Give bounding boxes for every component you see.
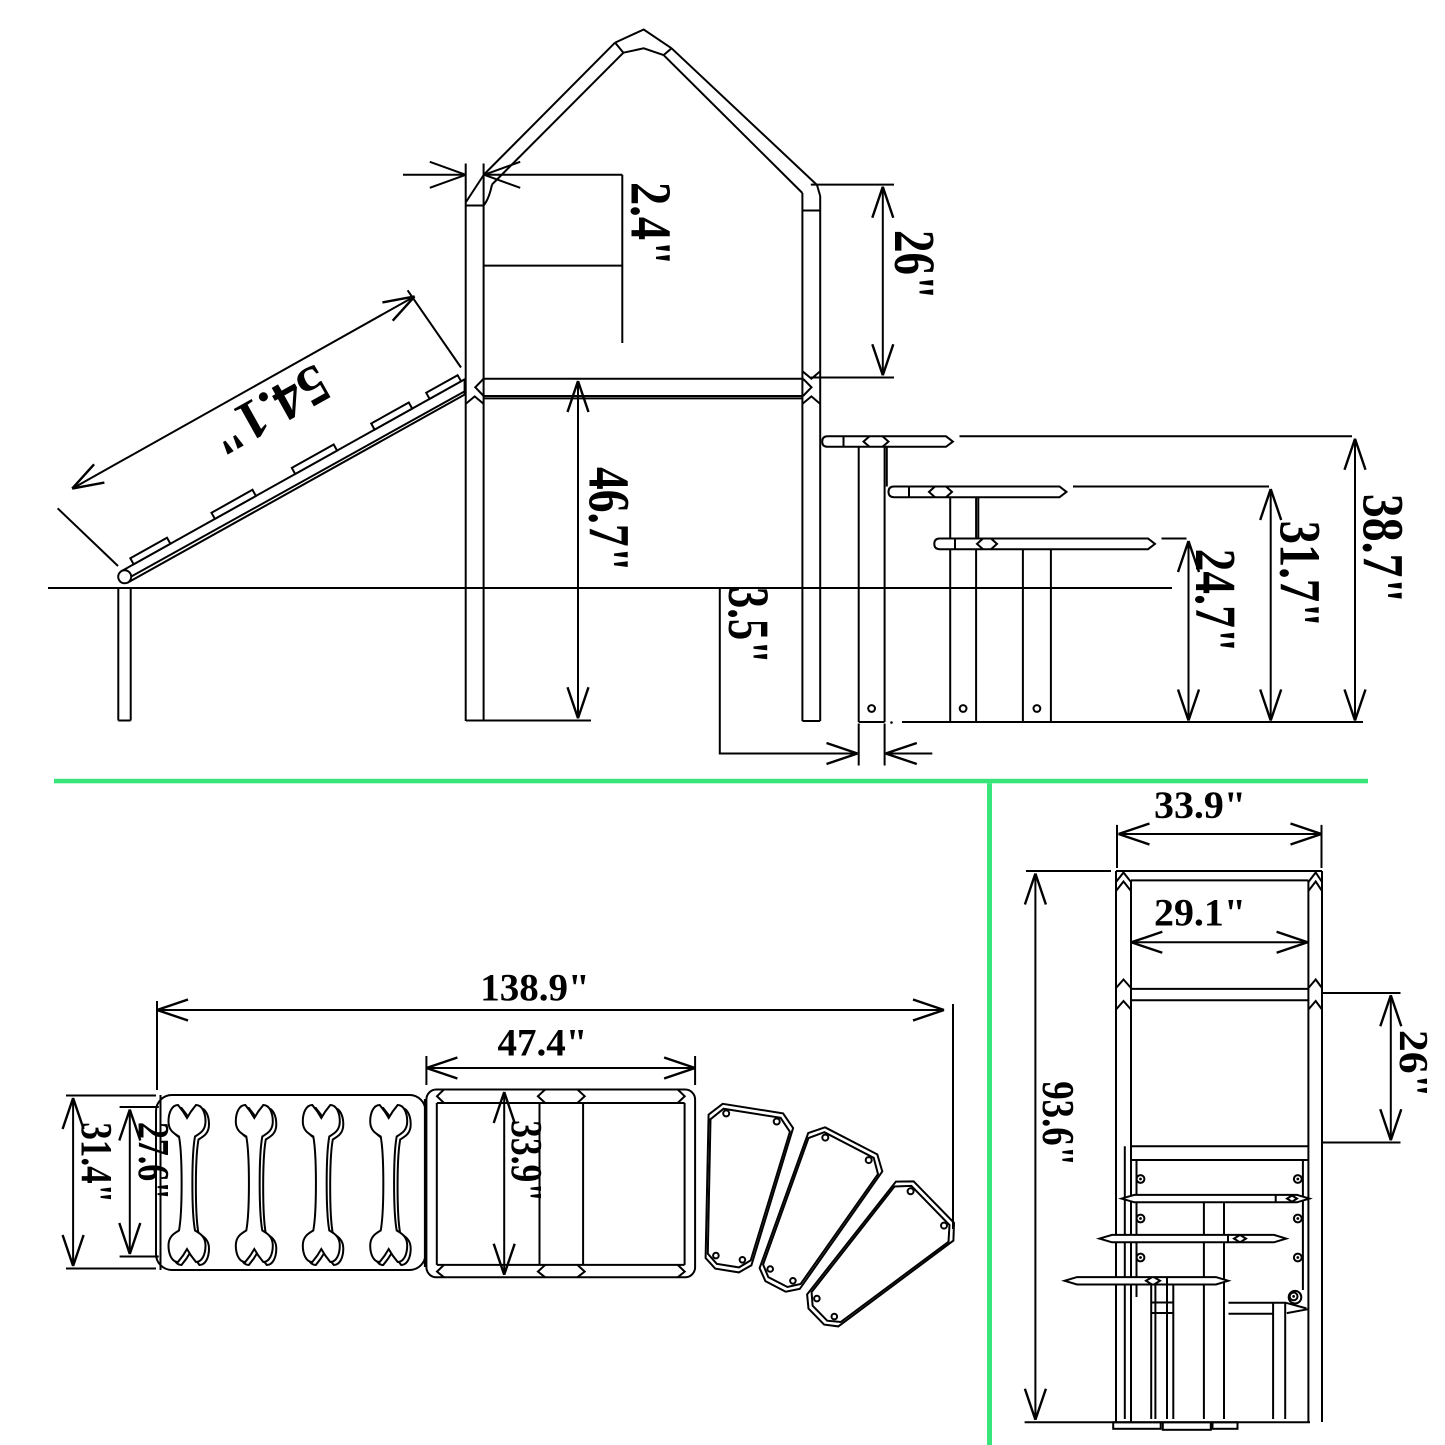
svg-text:33.9": 33.9" <box>502 1120 551 1202</box>
svg-text:31.4": 31.4" <box>72 1122 121 1203</box>
svg-text:27.6": 27.6" <box>129 1122 178 1200</box>
svg-text:2.4": 2.4" <box>619 182 684 266</box>
svg-text:31.7": 31.7" <box>1268 521 1333 628</box>
svg-text:47.4": 47.4" <box>498 1022 588 1065</box>
svg-text:24.7": 24.7" <box>1183 549 1248 653</box>
svg-text:3.5": 3.5" <box>716 587 781 664</box>
svg-text:38.7": 38.7" <box>1351 494 1416 604</box>
svg-text:26": 26" <box>1391 1030 1437 1098</box>
svg-text:46.7": 46.7" <box>576 467 641 572</box>
svg-text:138.9": 138.9" <box>480 967 589 1010</box>
svg-text:33.9": 33.9" <box>1154 784 1246 827</box>
svg-text:54.1": 54.1" <box>198 352 340 469</box>
svg-text:29.1": 29.1" <box>1154 892 1246 935</box>
svg-text:26": 26" <box>882 230 947 300</box>
svg-text:93.6": 93.6" <box>1033 1081 1083 1166</box>
